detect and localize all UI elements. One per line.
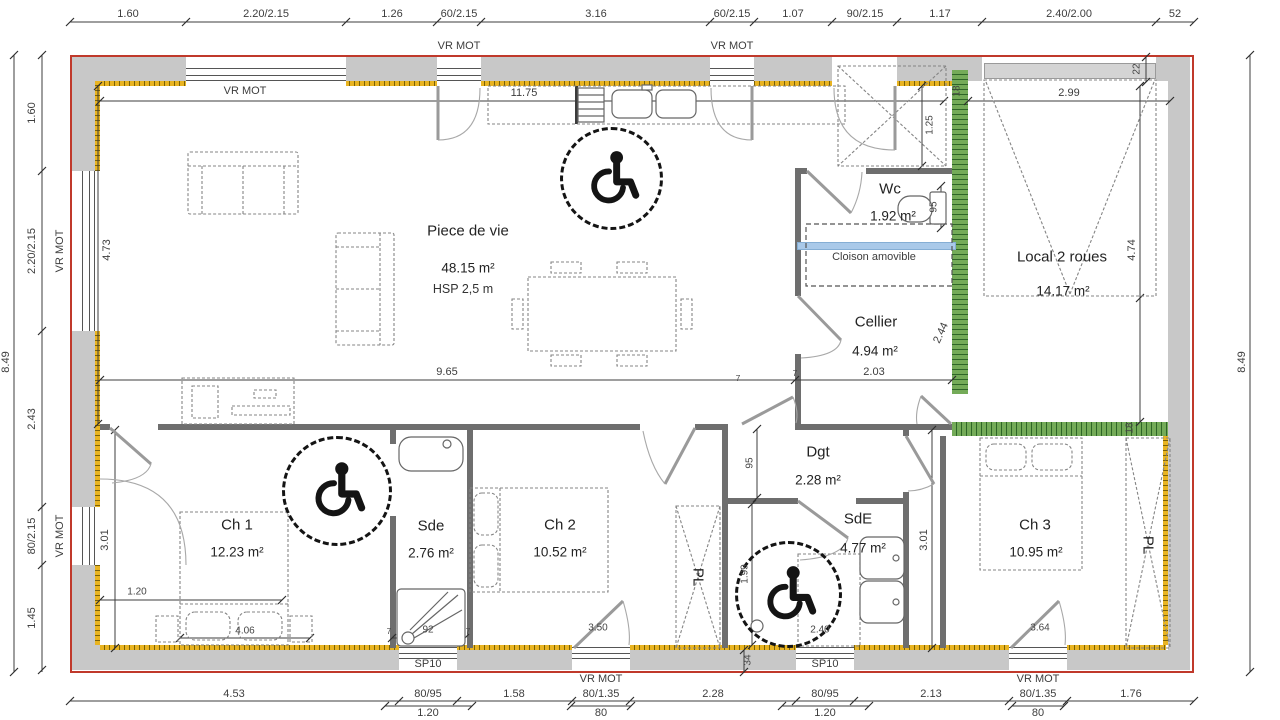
dim-bottom-4: 2.28 bbox=[702, 688, 723, 700]
dim-sde2-h: 1.99 bbox=[740, 564, 751, 583]
dim-closet: 1.25 bbox=[925, 115, 936, 134]
dim-shower: 92 bbox=[422, 625, 433, 636]
dim-wall-18b: 18 bbox=[1125, 422, 1136, 433]
dim-top-2: 1.26 bbox=[381, 8, 402, 20]
label-cloison-amovible: Cloison amovible bbox=[832, 251, 916, 263]
dim-top-3: 60/2.15 bbox=[441, 8, 478, 20]
dim-bottom-1: 80/95 bbox=[414, 688, 442, 700]
window-label-sp10: SP10 bbox=[415, 658, 442, 670]
room-label-local-2-roues: Local 2 roues bbox=[1017, 249, 1107, 266]
dim-top-0: 1.60 bbox=[117, 8, 138, 20]
dim-ch1-h: 3.01 bbox=[99, 529, 111, 550]
dim-bottom-8: 1.76 bbox=[1120, 688, 1141, 700]
room-label-sde: Sde bbox=[418, 518, 445, 535]
dim-bottom-sub-0: 1.20 bbox=[417, 707, 438, 719]
dim-kitchen: 11.75 bbox=[511, 87, 538, 99]
room-area-sde: 2.76 m² bbox=[408, 546, 454, 561]
room-area-cellier: 4.94 m² bbox=[852, 344, 898, 359]
dim-garage-lintel: 22 bbox=[1132, 63, 1143, 74]
dim-bottom-0: 4.53 bbox=[223, 688, 244, 700]
room-area-ch2: 10.52 m² bbox=[533, 545, 586, 560]
dim-top-10: 52 bbox=[1169, 8, 1181, 20]
room-label-ch3: Ch 3 bbox=[1019, 517, 1051, 534]
dim-top-9: 2.40/2.00 bbox=[1046, 8, 1092, 20]
room-label-sde2: SdE bbox=[844, 511, 872, 528]
dim-bottom-sub-3: 80 bbox=[1032, 707, 1044, 719]
dim-shower-wall-l: 7 bbox=[387, 626, 392, 636]
dim-wall-7a: 7 bbox=[736, 373, 741, 383]
room-label-cellier: Cellier bbox=[855, 314, 898, 331]
wheelchair-accessibility-symbol bbox=[282, 436, 392, 546]
dim-ch3-h: 3.01 bbox=[918, 529, 930, 550]
dim-sde2-w: 2.40 bbox=[810, 625, 829, 636]
closet-label-pl2: PL bbox=[1140, 536, 1157, 554]
dim-bottom-2: 1.58 bbox=[503, 688, 524, 700]
dim-bottom-6: 2.13 bbox=[920, 688, 941, 700]
dim-wall-7b: 7 bbox=[793, 368, 798, 378]
dim-ch3-w: 3.64 bbox=[1030, 623, 1049, 634]
room-label-wc: Wc bbox=[879, 181, 901, 198]
room-label-dgt: Dgt bbox=[806, 444, 829, 461]
window-label-vrmot: VR MOT bbox=[1017, 673, 1060, 685]
room-label-ch1: Ch 1 bbox=[221, 517, 253, 534]
dim-garage-w: 2.99 bbox=[1058, 87, 1079, 99]
dim-top-7: 90/2.15 bbox=[847, 8, 884, 20]
room-area-dgt: 2.28 m² bbox=[795, 473, 841, 488]
wheelchair-icon bbox=[583, 150, 641, 208]
dim-bottom-5: 80/95 bbox=[811, 688, 839, 700]
dim-overall-right: 8.49 bbox=[1236, 351, 1248, 372]
wheelchair-accessibility-symbol bbox=[560, 127, 663, 230]
window-label-vrmot: VR MOT bbox=[711, 40, 754, 52]
room-area-piece-de-vie: 48.15 m² bbox=[441, 261, 494, 276]
dim-overall-left: 8.49 bbox=[0, 351, 12, 372]
wheelchair-icon bbox=[307, 461, 367, 521]
dim-bottom-sub-1: 80 bbox=[595, 707, 607, 719]
room-label-ch2: Ch 2 bbox=[544, 517, 576, 534]
room-area-local-2-roues: 14.17 m² bbox=[1036, 284, 1089, 299]
dim-top-1: 2.20/2.15 bbox=[243, 8, 289, 20]
dim-top-5: 60/2.15 bbox=[714, 8, 751, 20]
dim-top-4: 3.16 bbox=[585, 8, 606, 20]
window-label-vrmot: VR MOT bbox=[54, 515, 66, 558]
room-area-ch1: 12.23 m² bbox=[210, 545, 263, 560]
dim-ch1-bed: 4.06 bbox=[235, 626, 254, 637]
room-area-ch3: 10.95 m² bbox=[1009, 545, 1062, 560]
window-label-vrmot: VR MOT bbox=[224, 85, 267, 97]
dim-wall-18a: 18 bbox=[952, 85, 963, 96]
dim-cellier-w: 2.03 bbox=[863, 366, 884, 378]
room-hsp-piece-de-vie: HSP 2,5 m bbox=[433, 282, 493, 296]
dim-top-6: 1.07 bbox=[782, 8, 803, 20]
window-label-vrmot: VR MOT bbox=[54, 230, 66, 273]
dim-left-4: 1.45 bbox=[26, 607, 38, 628]
dim-ch1-off: 1.20 bbox=[127, 587, 146, 598]
dim-shower-wall-r: 7 bbox=[466, 626, 471, 636]
dim-bottom-sub-2: 1.20 bbox=[814, 707, 835, 719]
room-label-piece-de-vie: Piece de vie bbox=[427, 223, 509, 240]
window-label-vrmot: VR MOT bbox=[580, 673, 623, 685]
window-label-sp10: SP10 bbox=[812, 658, 839, 670]
dim-sde2-wall: 34 bbox=[743, 654, 754, 665]
dim-bottom-7: 80/1.35 bbox=[1020, 688, 1057, 700]
wheelchair-icon bbox=[759, 565, 818, 624]
dim-bottom-3: 80/1.35 bbox=[583, 688, 620, 700]
floor-plan-page: { "plan": { "rooms": { "piece_de_vie": {… bbox=[0, 0, 1280, 720]
dim-living-h: 4.73 bbox=[101, 239, 113, 260]
doors-layer bbox=[0, 0, 1280, 720]
dim-left-0: 1.60 bbox=[26, 102, 38, 123]
dim-left-2: 2.43 bbox=[26, 408, 38, 429]
dim-dgt-w: 95 bbox=[745, 457, 756, 468]
room-area-sde2: 4.77 m² bbox=[840, 541, 886, 556]
dim-living-w: 9.65 bbox=[436, 366, 457, 378]
dim-garage-h: 4.74 bbox=[1126, 239, 1138, 260]
dim-top-8: 1.17 bbox=[929, 8, 950, 20]
dim-left-3: 80/2.15 bbox=[26, 518, 38, 555]
room-area-wc: 1.92 m² bbox=[870, 209, 916, 224]
window-label-vrmot: VR MOT bbox=[438, 40, 481, 52]
dim-left-1: 2.20/2.15 bbox=[26, 228, 38, 274]
dim-wc-side: 95 bbox=[929, 201, 940, 212]
closet-label-pl1: PL bbox=[690, 568, 707, 586]
dim-ch2-w: 3.50 bbox=[588, 623, 607, 634]
